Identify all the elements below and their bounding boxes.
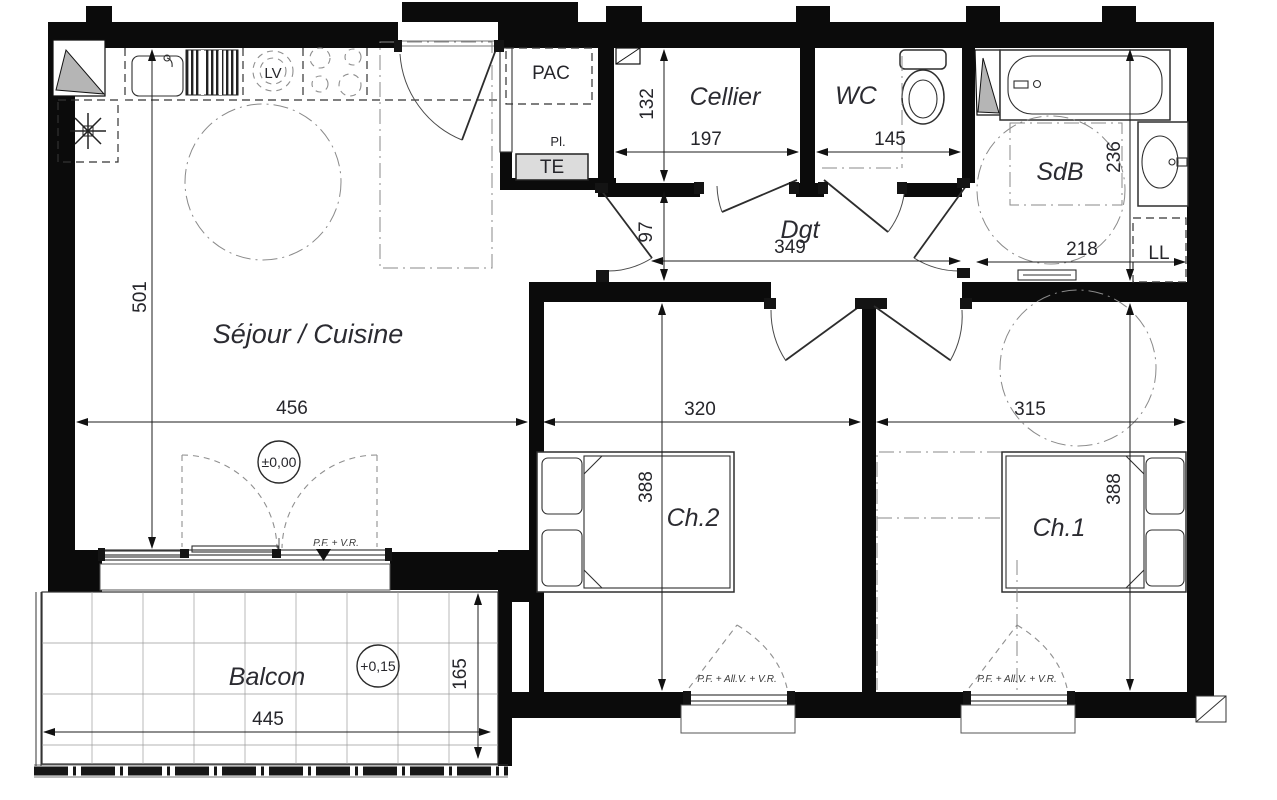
room-label-dgt: Dgt [781, 216, 821, 244]
washbasin-icon [1138, 122, 1188, 206]
towel-radiator-icon [1018, 270, 1076, 280]
room-label-cellier: Cellier [690, 83, 763, 111]
dim-ch2-height: 388 [636, 471, 657, 503]
entry-closet-zone [380, 42, 492, 268]
room-label-ch2: Ch.2 [667, 504, 720, 532]
bay-window: P.F. + V.R. [98, 538, 392, 590]
dishwasher-icon: LV [253, 51, 293, 91]
dim-sdb-width: 218 [1066, 239, 1098, 260]
dim-balcon-height: 165 [450, 658, 471, 690]
drainer-icon [186, 50, 238, 95]
duct-sdb [975, 50, 1000, 115]
room-label-sdb: SdB [1036, 158, 1083, 186]
bedroom1: P.F. + All.V. + V.R. [877, 290, 1186, 733]
bed-ch1-icon [1002, 452, 1186, 592]
room-label-balcon: Balcon [229, 663, 305, 691]
turning-circle-sdb [977, 116, 1125, 264]
room-label-sejour: Séjour / Cuisine [213, 319, 404, 349]
kitchen-counter: LV [125, 48, 500, 100]
level-value-balcon: +0,15 [360, 658, 396, 674]
dim-ch2-width: 320 [684, 399, 716, 420]
hob-icon [310, 48, 361, 96]
dim-sejour-width: 456 [276, 398, 308, 419]
dim-wc-width: 145 [874, 129, 906, 150]
door-wc [818, 180, 907, 232]
dim-cellier-width: 197 [690, 129, 722, 150]
electrical-panel-label: TE [540, 157, 564, 178]
room-label-wc: WC [835, 82, 878, 110]
door-ch1 [874, 298, 972, 361]
sejour-features: ±0,00 P.F. + V.R. [58, 42, 492, 590]
washing-machine-label: LL [1148, 243, 1169, 264]
dishwasher-label: LV [264, 65, 281, 82]
dim-ch1-width: 315 [1014, 399, 1046, 420]
toilet-icon [900, 50, 946, 124]
bay-window-label: P.F. + V.R. [313, 538, 359, 549]
doors [394, 40, 972, 361]
duct-top-left [53, 40, 105, 96]
level-value-sejour: ±0,00 [262, 454, 297, 470]
bedroom2: P.F. + All.V. + V.R. [537, 452, 795, 733]
heat-pump-label: PAC [532, 63, 570, 84]
window-ch2-label: P.F. + All.V. + V.R. [697, 674, 776, 685]
dim-cellier-height: 132 [637, 88, 658, 120]
turning-circle-ch1 [1000, 290, 1156, 446]
floor-plan-drawing: LV ±0,00 [0, 0, 1277, 800]
door-entrance [394, 40, 504, 140]
floor-plan: LV ±0,00 [0, 0, 1277, 800]
dining-table-icon [185, 104, 341, 260]
dim-ch1-height: 388 [1104, 473, 1125, 505]
window-ch1-label: P.F. + All.V. + V.R. [977, 674, 1056, 685]
washing-machine: LL [1133, 218, 1186, 282]
level-badge-sejour: ±0,00 [258, 441, 300, 483]
bathtub-icon [1000, 50, 1170, 120]
sink-icon [132, 55, 183, 96]
door-cellier [694, 180, 799, 212]
dim-sdb-height: 236 [1104, 141, 1125, 173]
corner-cut-icon [1196, 696, 1226, 722]
notch-cellier [616, 48, 640, 64]
dim-balcon-width: 445 [252, 709, 284, 730]
room-label-ch1: Ch.1 [1033, 514, 1086, 542]
dim-sejour-height: 501 [130, 281, 151, 313]
window-ch2: P.F. + All.V. + V.R. [681, 625, 795, 733]
utility-column: PAC Pl. TE [506, 48, 592, 180]
closet-label: Pl. [550, 134, 565, 149]
dim-dgt-height: 97 [636, 221, 657, 242]
